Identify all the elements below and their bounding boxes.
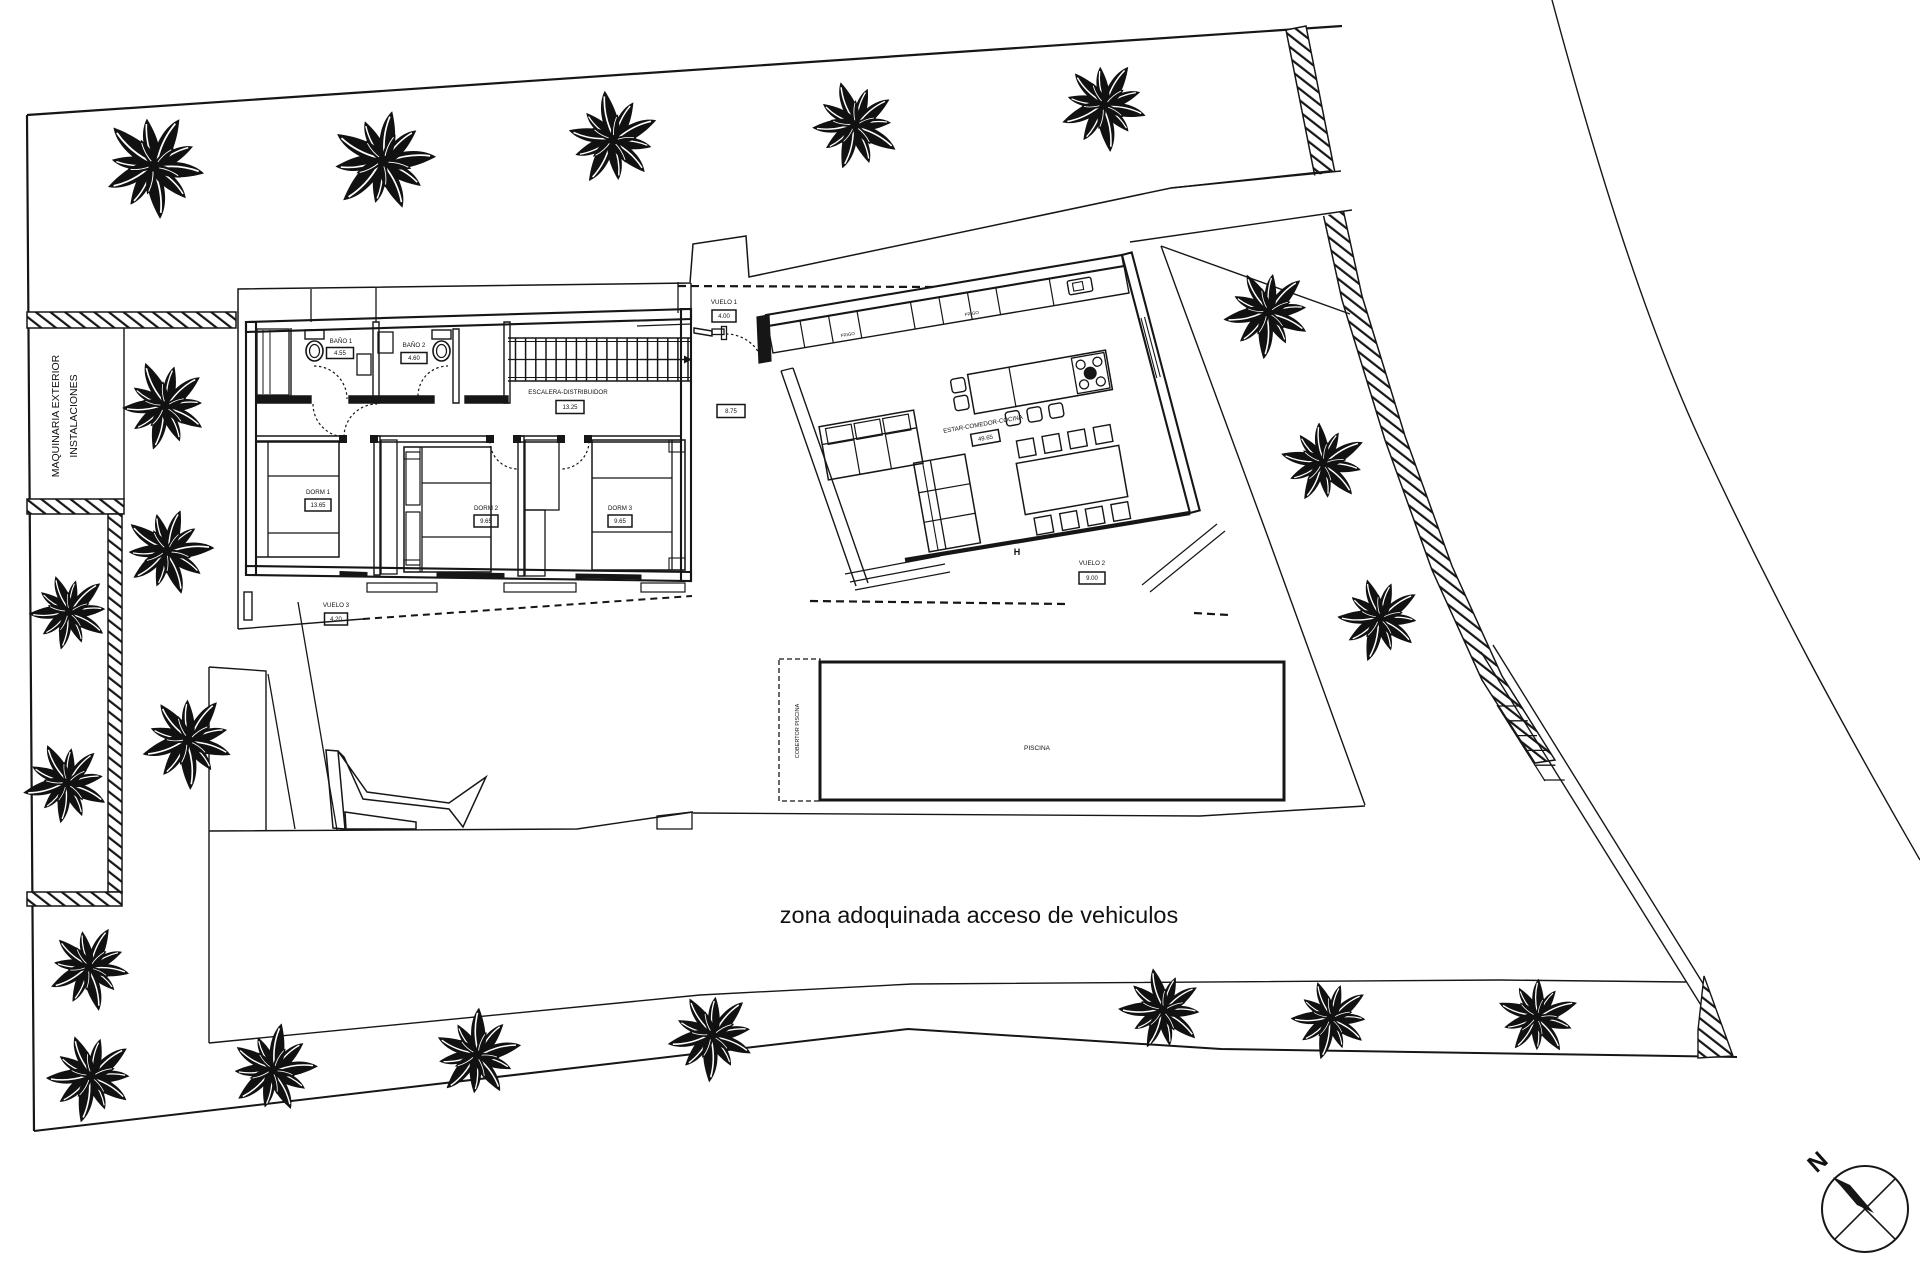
svg-text:9.65: 9.65 bbox=[614, 519, 626, 525]
svg-text:MAQUINARIA EXTERIOR: MAQUINARIA EXTERIOR bbox=[50, 354, 62, 477]
svg-text:BAÑO 2: BAÑO 2 bbox=[403, 342, 426, 349]
svg-text:DORM 3: DORM 3 bbox=[608, 505, 633, 512]
svg-text:INSTALACIONES: INSTALACIONES bbox=[68, 374, 80, 457]
svg-text:13.25: 13.25 bbox=[562, 405, 578, 411]
svg-text:4.00: 4.00 bbox=[718, 314, 730, 320]
svg-text:4.20: 4.20 bbox=[330, 617, 342, 623]
svg-text:4.55: 4.55 bbox=[334, 351, 346, 357]
svg-text:DORM 1: DORM 1 bbox=[306, 489, 331, 496]
svg-text:9.00: 9.00 bbox=[1086, 576, 1098, 582]
svg-text:ESCALERA-DISTRIBUIDOR: ESCALERA-DISTRIBUIDOR bbox=[528, 389, 608, 396]
svg-text:H: H bbox=[1014, 547, 1021, 557]
svg-text:9.65: 9.65 bbox=[480, 519, 492, 525]
svg-text:BAÑO 1: BAÑO 1 bbox=[330, 338, 353, 345]
svg-text:VUELO 1: VUELO 1 bbox=[711, 299, 738, 306]
svg-text:PISCINA: PISCINA bbox=[1024, 745, 1051, 752]
svg-text:VUELO 3: VUELO 3 bbox=[323, 602, 350, 609]
svg-text:4.60: 4.60 bbox=[408, 356, 420, 362]
svg-text:13.65: 13.65 bbox=[310, 503, 326, 509]
svg-text:COBERTOR PISCINA: COBERTOR PISCINA bbox=[795, 703, 801, 758]
svg-text:zona adoquinada acceso de vehi: zona adoquinada acceso de vehiculos bbox=[780, 902, 1179, 928]
svg-text:VUELO 2: VUELO 2 bbox=[1079, 560, 1106, 567]
svg-text:DORM 2: DORM 2 bbox=[474, 505, 499, 512]
svg-text:8.75: 8.75 bbox=[725, 409, 737, 415]
